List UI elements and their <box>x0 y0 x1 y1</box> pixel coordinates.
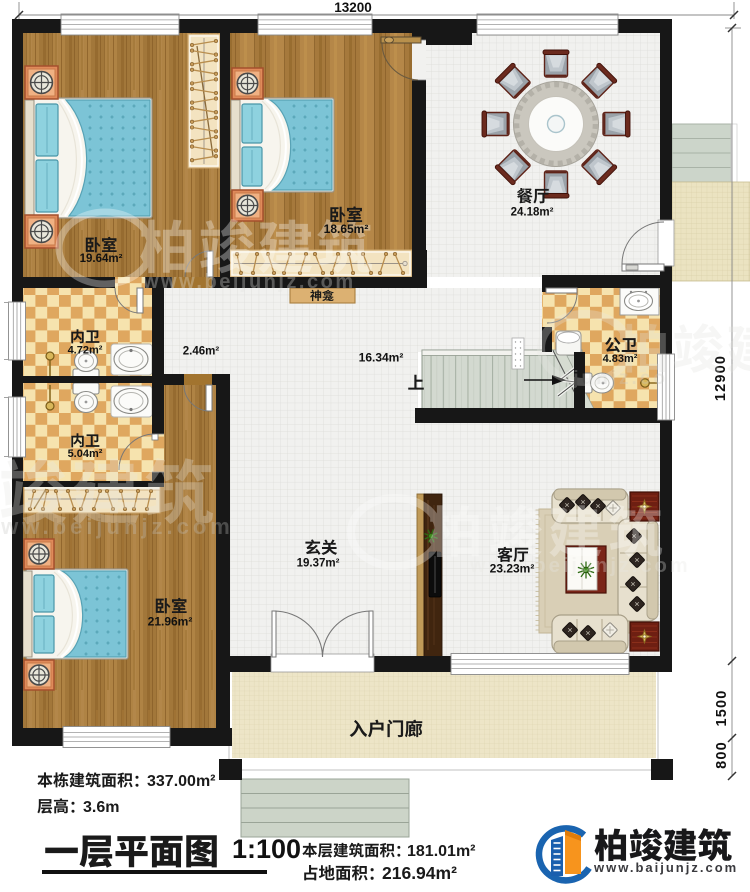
svg-text:337.00m²: 337.00m² <box>147 773 216 790</box>
svg-text:2.46m²: 2.46m² <box>183 346 220 358</box>
svg-text:19.37m²: 19.37m² <box>297 558 340 570</box>
svg-text:ijunjz.co: ijunjz.co <box>565 368 668 389</box>
svg-text:24.18m²: 24.18m² <box>511 207 554 219</box>
svg-text:5.04m²: 5.04m² <box>68 448 103 460</box>
svg-text:12900: 12900 <box>713 355 729 401</box>
svg-text:4.72m²: 4.72m² <box>68 345 103 357</box>
svg-text:21.96m²: 21.96m² <box>148 615 193 629</box>
svg-text:216.94m²: 216.94m² <box>382 863 457 883</box>
svg-text:800: 800 <box>714 741 730 769</box>
svg-text:19.64m²: 19.64m² <box>80 253 123 265</box>
svg-text:16.34m²: 16.34m² <box>359 351 404 365</box>
svg-text:13200: 13200 <box>334 0 372 15</box>
svg-text:3.6m: 3.6m <box>83 799 119 816</box>
svg-text:18.65m²: 18.65m² <box>324 222 369 236</box>
svg-text:www.beijunjz.com: www.beijunjz.com <box>0 514 234 539</box>
svg-text:4.83m²: 4.83m² <box>603 353 638 365</box>
svg-text:1500: 1500 <box>714 689 730 726</box>
svg-text:23.23m²: 23.23m² <box>490 562 535 576</box>
svg-text:www.baijunjz.com: www.baijunjz.com <box>593 860 738 875</box>
svg-text:www.beijunjz.com: www.beijunjz.com <box>142 271 356 293</box>
svg-text:1:100: 1:100 <box>232 834 301 864</box>
svg-text:181.01m²: 181.01m² <box>407 843 476 860</box>
